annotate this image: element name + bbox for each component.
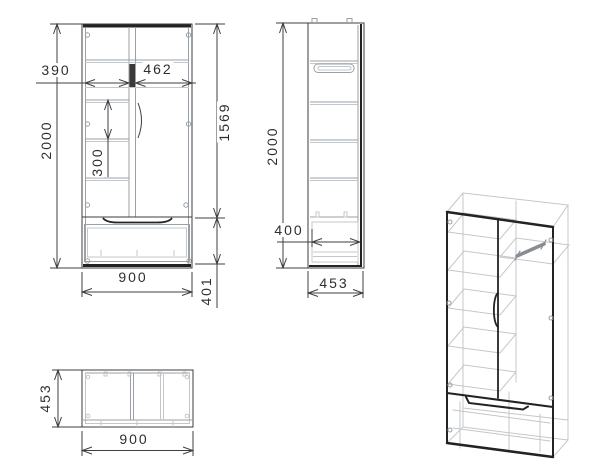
dim-side-total-depth: 453 [318, 276, 349, 290]
side-view [308, 19, 364, 269]
dim-front-left-width: 390 [40, 63, 71, 77]
dim-top-total-depth: 453 [38, 382, 52, 413]
fitting-marks-top [86, 375, 189, 418]
dim-front-shelf-spacing: 300 [90, 146, 104, 177]
isometric-view [447, 193, 569, 457]
dim-front-total-width: 900 [117, 270, 148, 284]
hanging-rod-side [314, 64, 354, 73]
divider-gap [130, 64, 136, 87]
dim-front-right-width: 462 [142, 62, 173, 76]
iso-hanging-rod [517, 244, 544, 256]
door-handle [138, 103, 142, 138]
dim-front-upper-height: 1569 [217, 101, 231, 142]
technical-drawing-canvas: 2000 390 462 300 1569 900 401 2000 400 4… [0, 0, 600, 471]
dim-top-total-width: 900 [118, 432, 149, 446]
dim-side-drawer-depth: 400 [273, 223, 304, 237]
dim-side-total-height: 2000 [265, 125, 279, 166]
iso-shelves [448, 213, 569, 391]
drawer-recess [103, 218, 172, 223]
dim-front-drawer-height: 401 [199, 275, 213, 306]
iso-drawer-box [453, 402, 568, 452]
dim-front-total-height: 2000 [39, 119, 53, 160]
top-view [82, 370, 193, 427]
